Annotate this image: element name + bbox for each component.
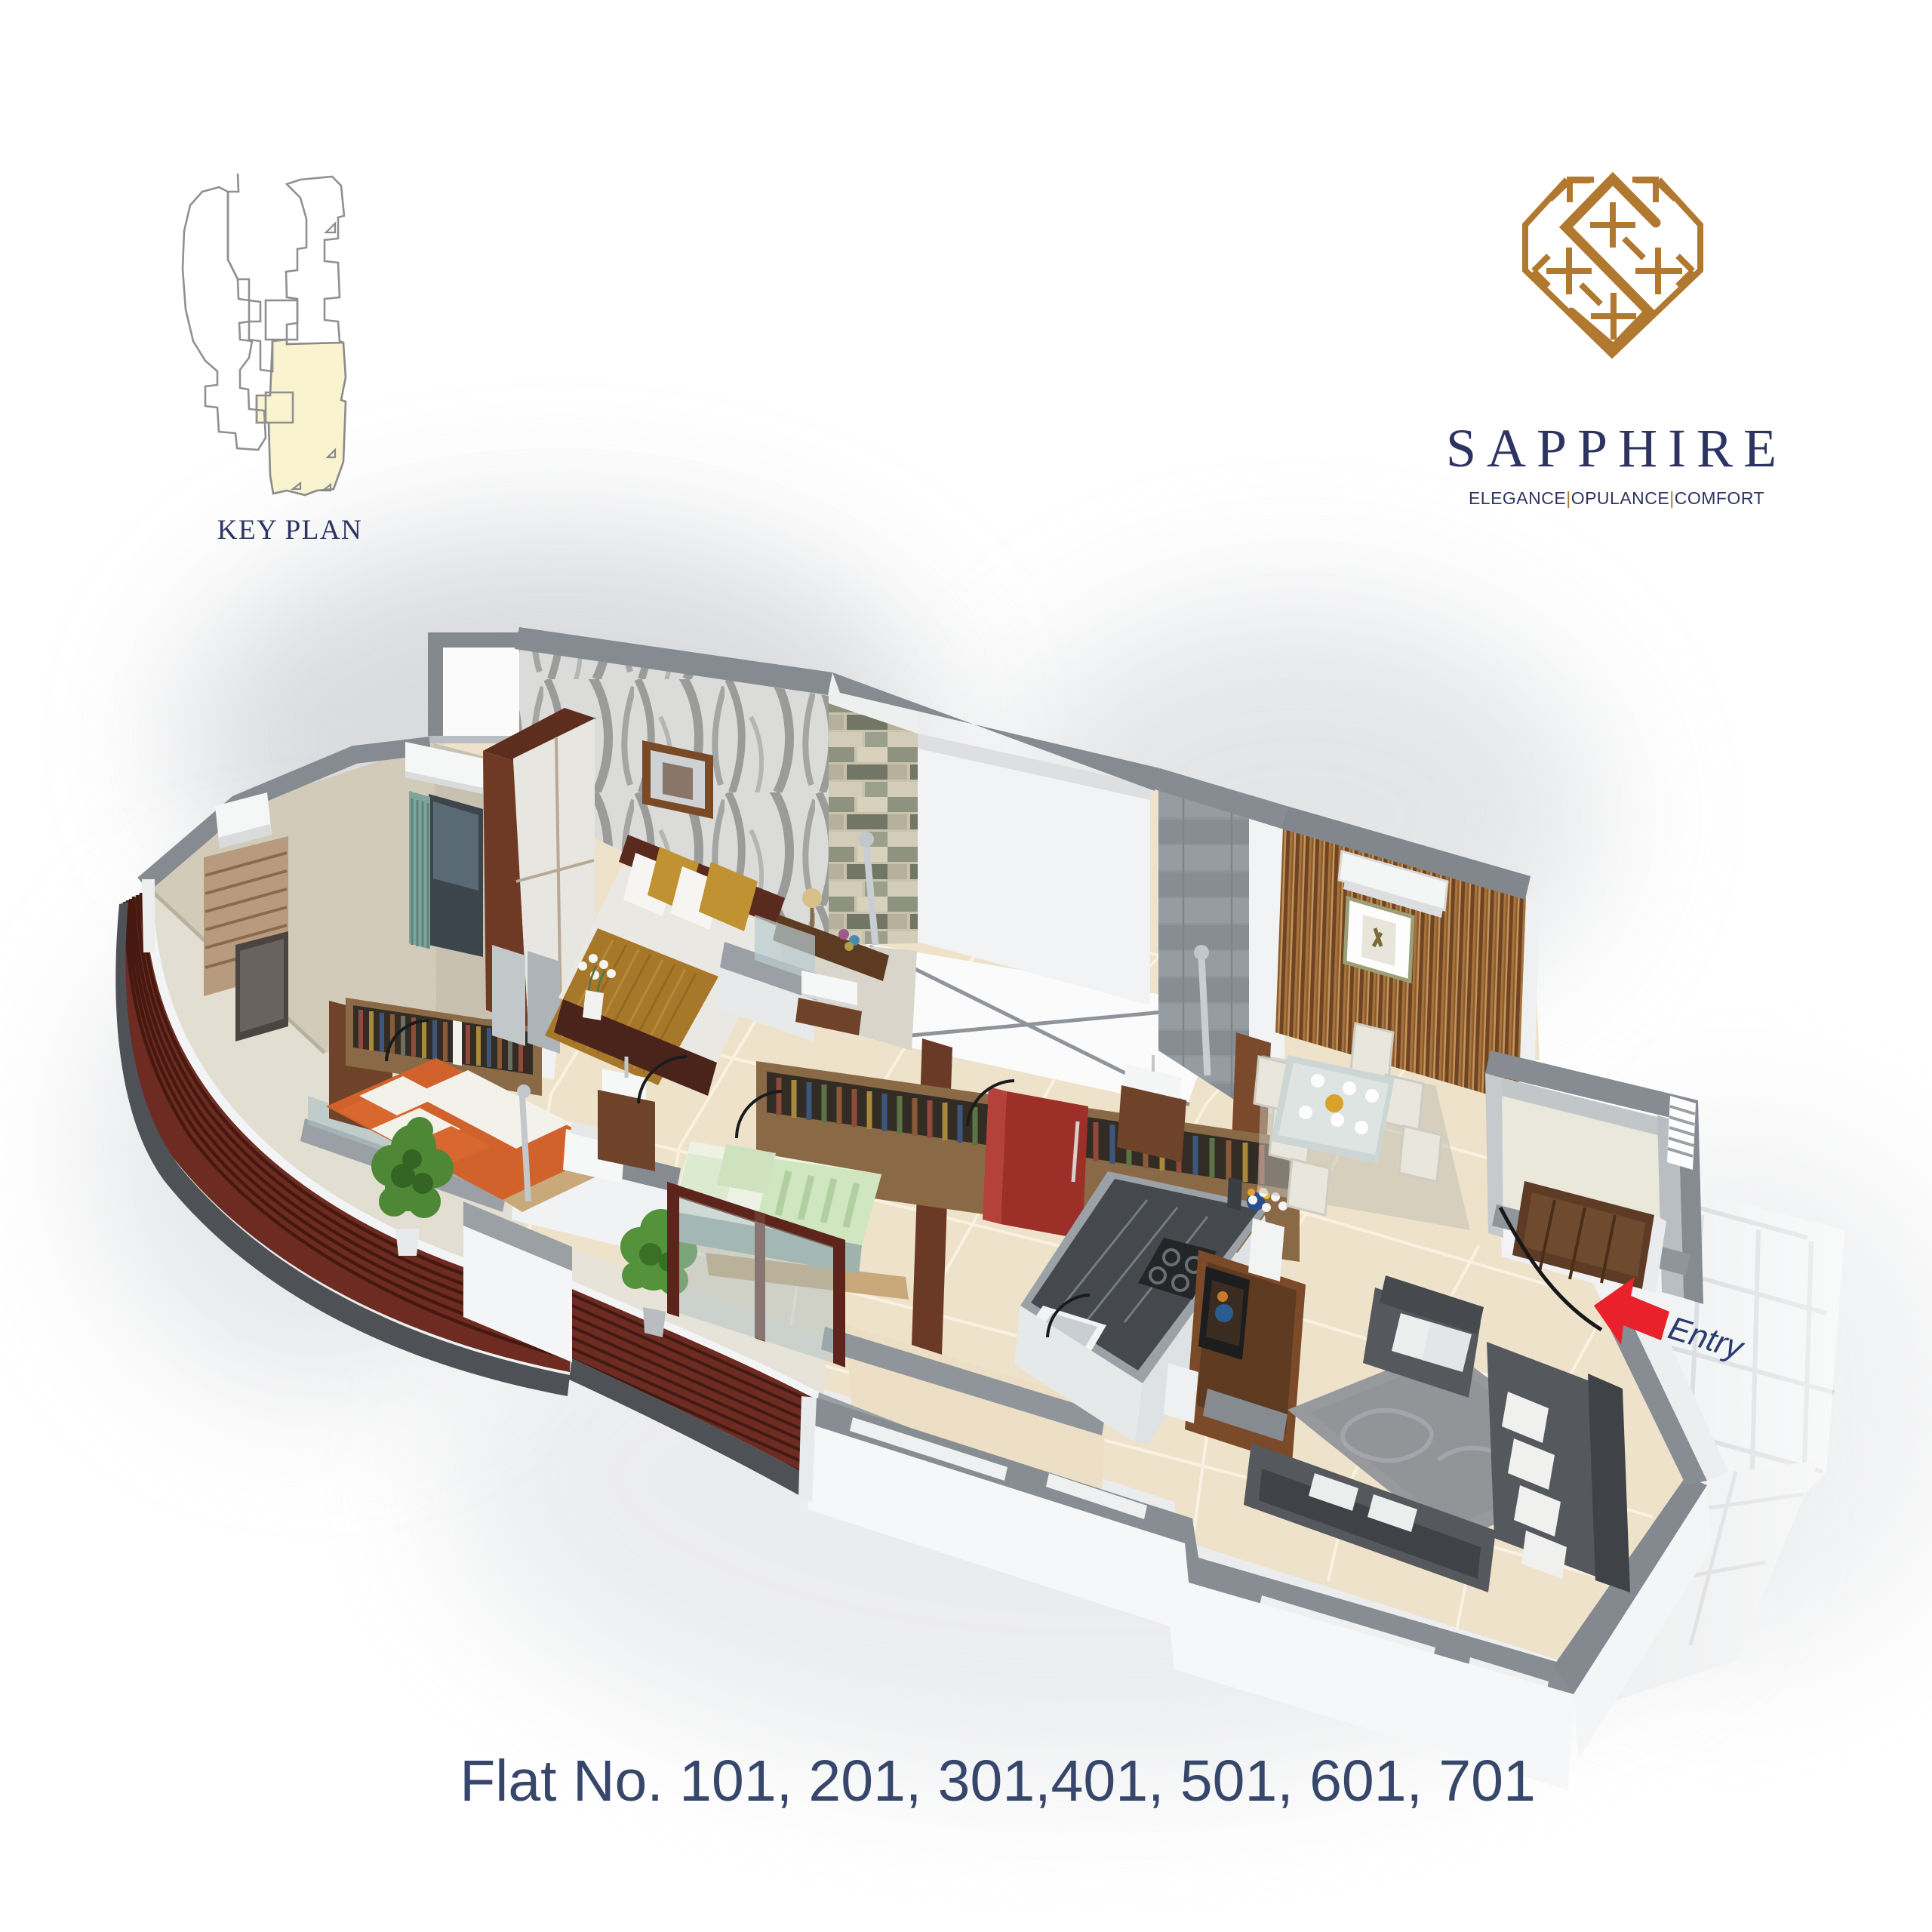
svg-text:SAPPHIRE: SAPPHIRE (1446, 418, 1787, 478)
svg-text:ELEGANCE|OPULANCE|COMFORT: ELEGANCE|OPULANCE|COMFORT (1469, 488, 1764, 508)
svg-text:KEY PLAN: KEY PLAN (217, 515, 363, 546)
svg-text:Flat No. 101, 201, 301,401, 50: Flat No. 101, 201, 301,401, 501, 601, 70… (460, 1749, 1536, 1814)
